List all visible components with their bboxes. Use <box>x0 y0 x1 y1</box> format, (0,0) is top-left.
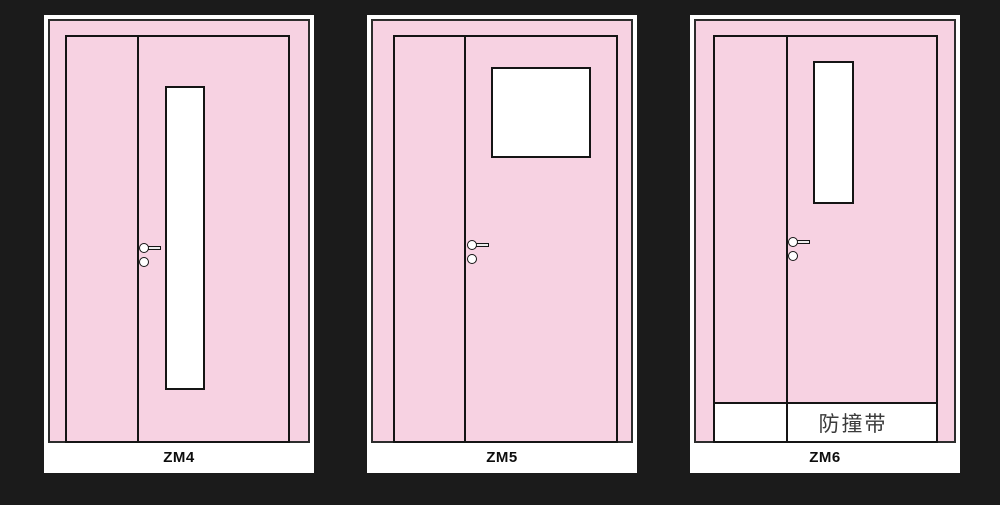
handle-lever-icon <box>796 240 810 245</box>
handle-lever-icon <box>147 246 161 251</box>
lock-cylinder-icon <box>467 254 477 264</box>
handle-rose-icon <box>467 240 477 250</box>
door-label: ZM4 <box>44 449 314 466</box>
door-label: ZM5 <box>367 449 637 466</box>
door-unit-zm4: ZM4 <box>44 15 314 473</box>
vision-panel-medium <box>813 61 854 204</box>
lock-cylinder-icon <box>139 257 149 267</box>
door-unit-zm6: 防撞带 ZM6 <box>690 15 960 473</box>
door-unit-zm5: ZM5 <box>367 15 637 473</box>
handle-lever-icon <box>475 243 489 248</box>
lock-cylinder-icon <box>788 251 798 261</box>
door-handle-icon <box>139 243 165 267</box>
handle-rose-icon <box>139 243 149 253</box>
vision-panel-square <box>491 67 591 158</box>
anti-collision-strip-label: 防撞带 <box>788 404 934 441</box>
door-label: ZM6 <box>690 449 960 466</box>
handle-rose-icon <box>788 237 798 247</box>
door-handle-icon <box>788 237 814 261</box>
door-specification-diagram: ZM4 ZM5 防撞带 ZM6 <box>0 0 1000 505</box>
door-handle-icon <box>467 240 493 264</box>
vision-panel-tall <box>165 86 205 390</box>
door-leaf-divider <box>464 35 466 443</box>
door-leaf-divider <box>137 35 139 443</box>
